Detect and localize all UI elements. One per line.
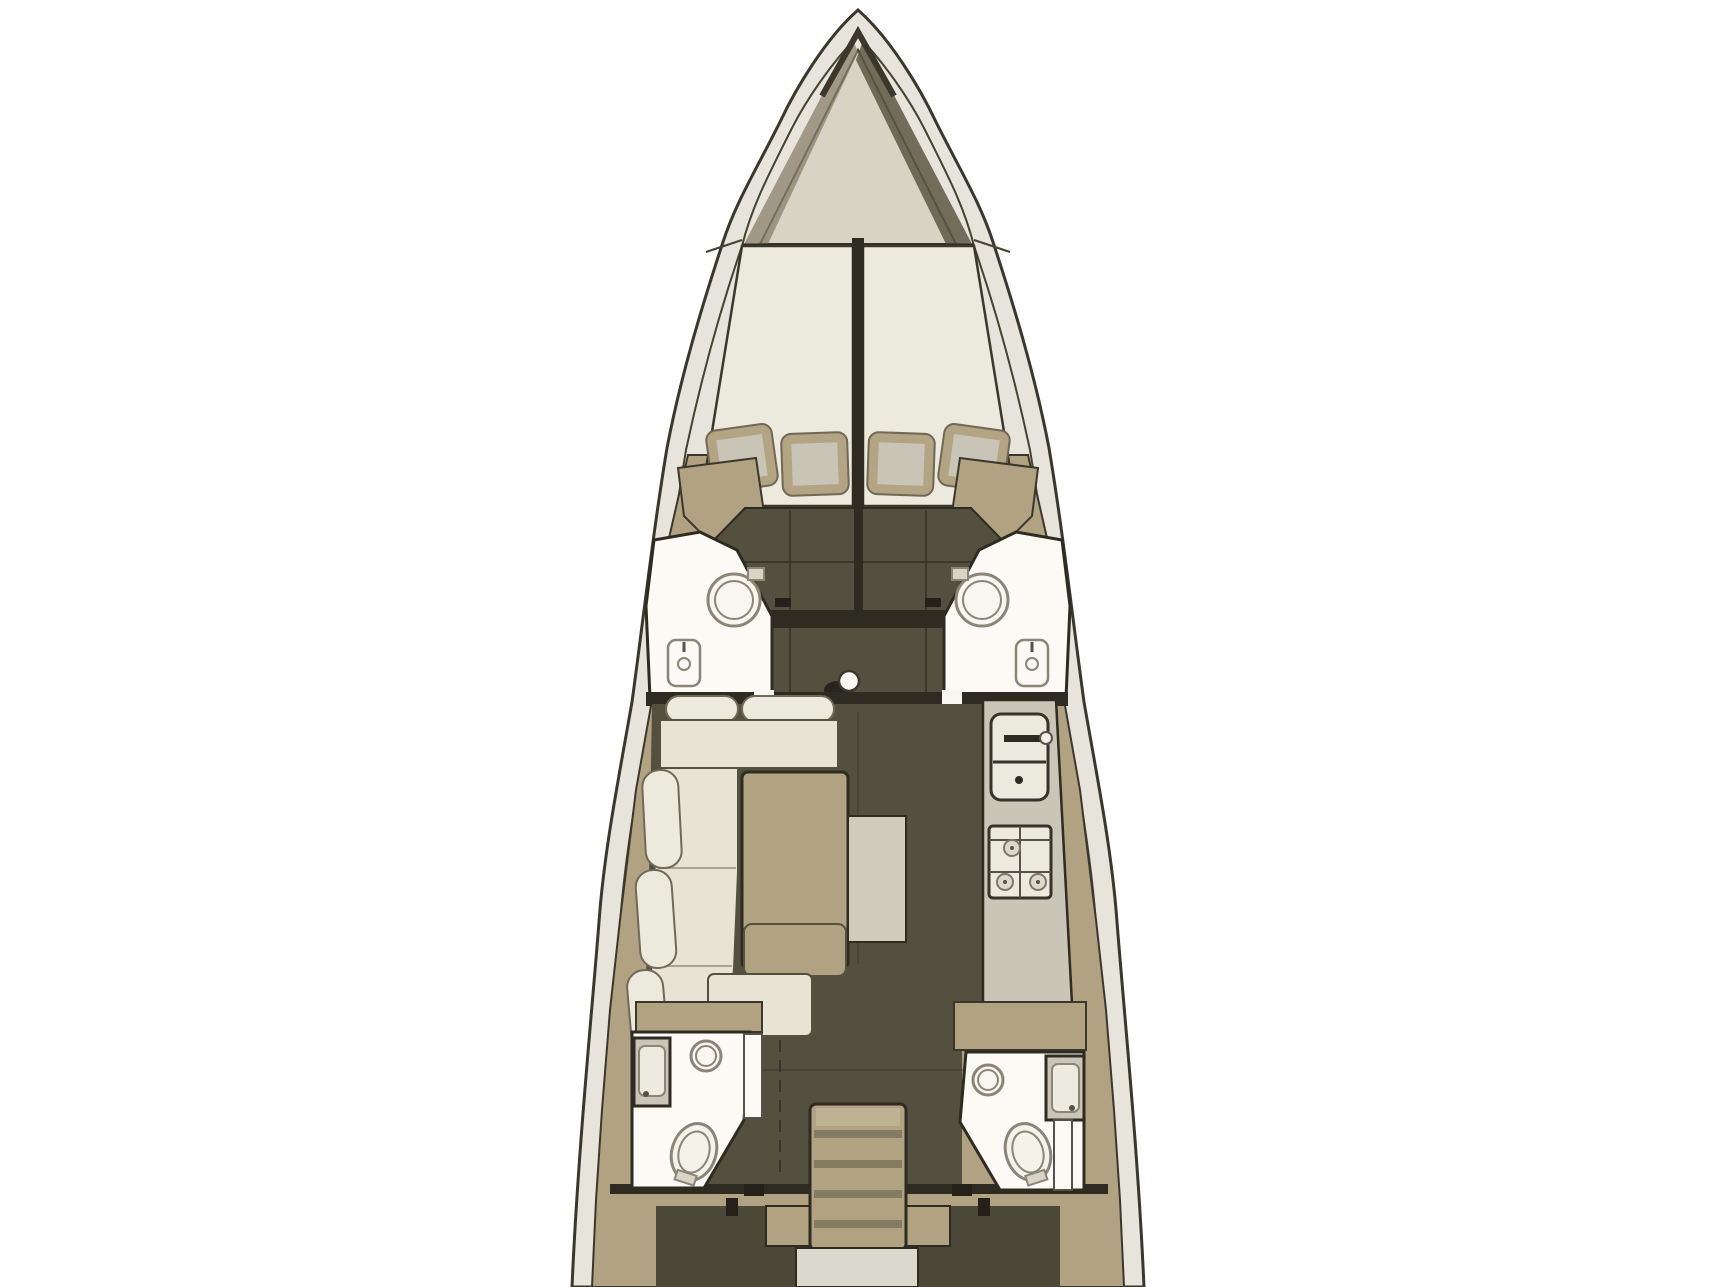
toilet-hinge: [952, 568, 968, 580]
sofa-back-bolster-top-2: [742, 696, 834, 722]
stairs-landing: [816, 1108, 900, 1126]
aft-head-starboard-cabinet: [954, 1002, 1086, 1050]
sink-faucet: [1004, 735, 1044, 742]
saloon-stool-bench: [848, 816, 906, 942]
berth-divider: [852, 238, 864, 508]
pillow-2: [781, 432, 849, 496]
sofa-aft-tan-module: [744, 924, 846, 976]
shower-pan: [639, 1046, 665, 1096]
aft-head-starboard-door: [1054, 1120, 1072, 1190]
galley: [983, 700, 1072, 1004]
shower-drain: [643, 1091, 649, 1097]
pillow-3: [867, 432, 935, 496]
aft-head-port-door: [744, 1034, 762, 1118]
yacht-floor-plan: [0, 0, 1717, 1287]
toilet-hinge: [748, 568, 764, 580]
stair-pillar-port: [766, 1206, 814, 1246]
pillow-center: [877, 442, 924, 486]
sink-drain: [1015, 776, 1023, 784]
companionway-bottom-step: [796, 1248, 918, 1287]
sink-faucet-knob: [1040, 732, 1052, 744]
stair-pillar-starboard: [902, 1206, 950, 1246]
aft-head-port-cabinet: [636, 1002, 762, 1032]
shower-pan: [1052, 1064, 1079, 1112]
head-door-gap-starboard: [942, 690, 962, 704]
sofa-back-bolster-top-1: [666, 696, 738, 722]
mast-post: [839, 671, 859, 691]
sofa-bench-forward: [660, 720, 838, 768]
berth-divider-floor: [854, 508, 863, 610]
pillow-center: [791, 442, 838, 486]
companionway: [796, 1104, 918, 1287]
yacht-floor-plan-page: [0, 0, 1717, 1287]
shower-drain: [1069, 1105, 1075, 1111]
galley-sink-unit: [991, 714, 1048, 800]
